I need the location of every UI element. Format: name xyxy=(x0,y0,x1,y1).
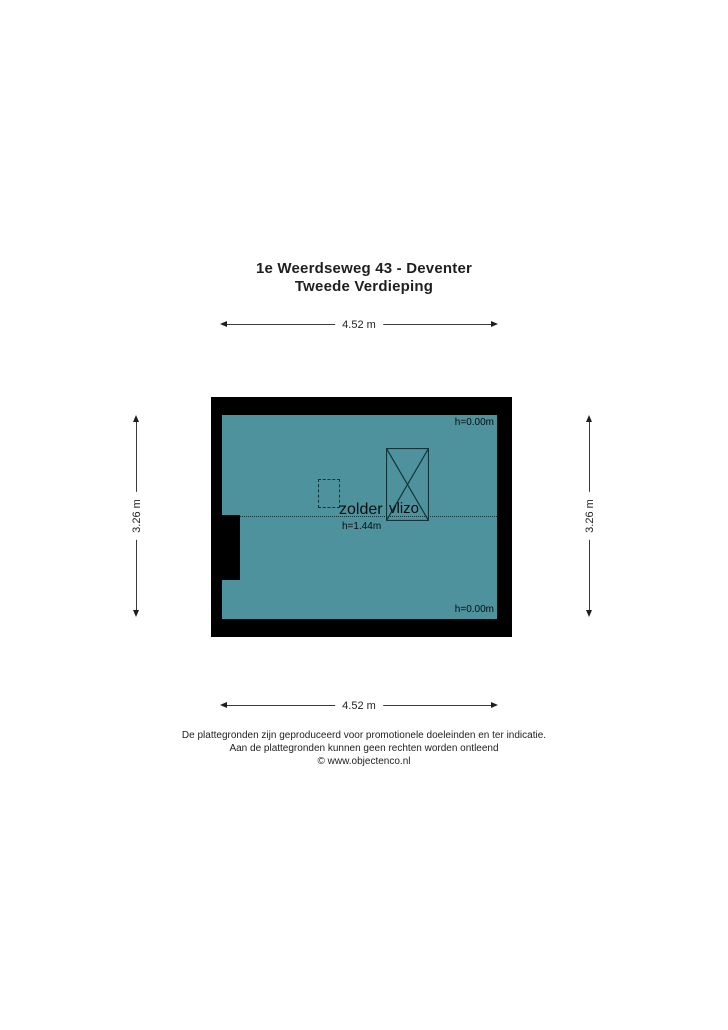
disclaimer-line-2: Aan de plattegronden kunnen geen rechten… xyxy=(0,742,728,755)
dimension-bottom-label: 4.52 m xyxy=(335,700,383,712)
arrow-up-icon xyxy=(586,415,592,422)
arrow-right-icon xyxy=(491,702,498,708)
arrow-down-icon xyxy=(586,610,592,617)
disclaimer-line-3: © www.objectenco.nl xyxy=(0,755,728,768)
floorplan-page: 1e Weerdseweg 43 - Deventer Tweede Verdi… xyxy=(0,0,728,1030)
height-annotation-top: h=0.00m xyxy=(455,417,494,428)
arrow-up-icon xyxy=(133,415,139,422)
title-floor: Tweede Verdieping xyxy=(0,278,728,296)
arrow-down-icon xyxy=(133,610,139,617)
disclaimer-line-1: De plattegronden zijn geproduceerd voor … xyxy=(0,729,728,742)
dimension-left: 3.26 m xyxy=(130,415,144,617)
dimension-top-label: 4.52 m xyxy=(335,319,383,331)
dimension-bottom: 4.52 m xyxy=(220,699,498,713)
chimney-outline xyxy=(318,479,340,508)
arrow-right-icon xyxy=(491,321,498,327)
arrow-left-icon xyxy=(220,702,227,708)
title-block: 1e Weerdseweg 43 - Deventer Tweede Verdi… xyxy=(0,260,728,296)
disclaimer: De plattegronden zijn geproduceerd voor … xyxy=(0,729,728,768)
title-address: 1e Weerdseweg 43 - Deventer xyxy=(0,260,728,278)
floorplan-walls: h=0.00m vlizo zolder h=1.44m h=0.00m xyxy=(211,397,512,637)
arrow-left-icon xyxy=(220,321,227,327)
room-label: zolder xyxy=(339,501,383,519)
vlizo-label: vlizo xyxy=(389,500,419,517)
dimension-right-label: 3.26 m xyxy=(584,492,596,540)
dimension-top: 4.52 m xyxy=(220,318,498,332)
wall-protrusion xyxy=(221,515,240,580)
dimension-left-label: 3.26 m xyxy=(131,492,143,540)
room-zolder: h=0.00m vlizo zolder h=1.44m h=0.00m xyxy=(222,415,497,619)
room-height-label: h=1.44m xyxy=(342,521,381,532)
height-annotation-bottom: h=0.00m xyxy=(455,604,494,615)
dimension-right: 3.26 m xyxy=(583,415,597,617)
